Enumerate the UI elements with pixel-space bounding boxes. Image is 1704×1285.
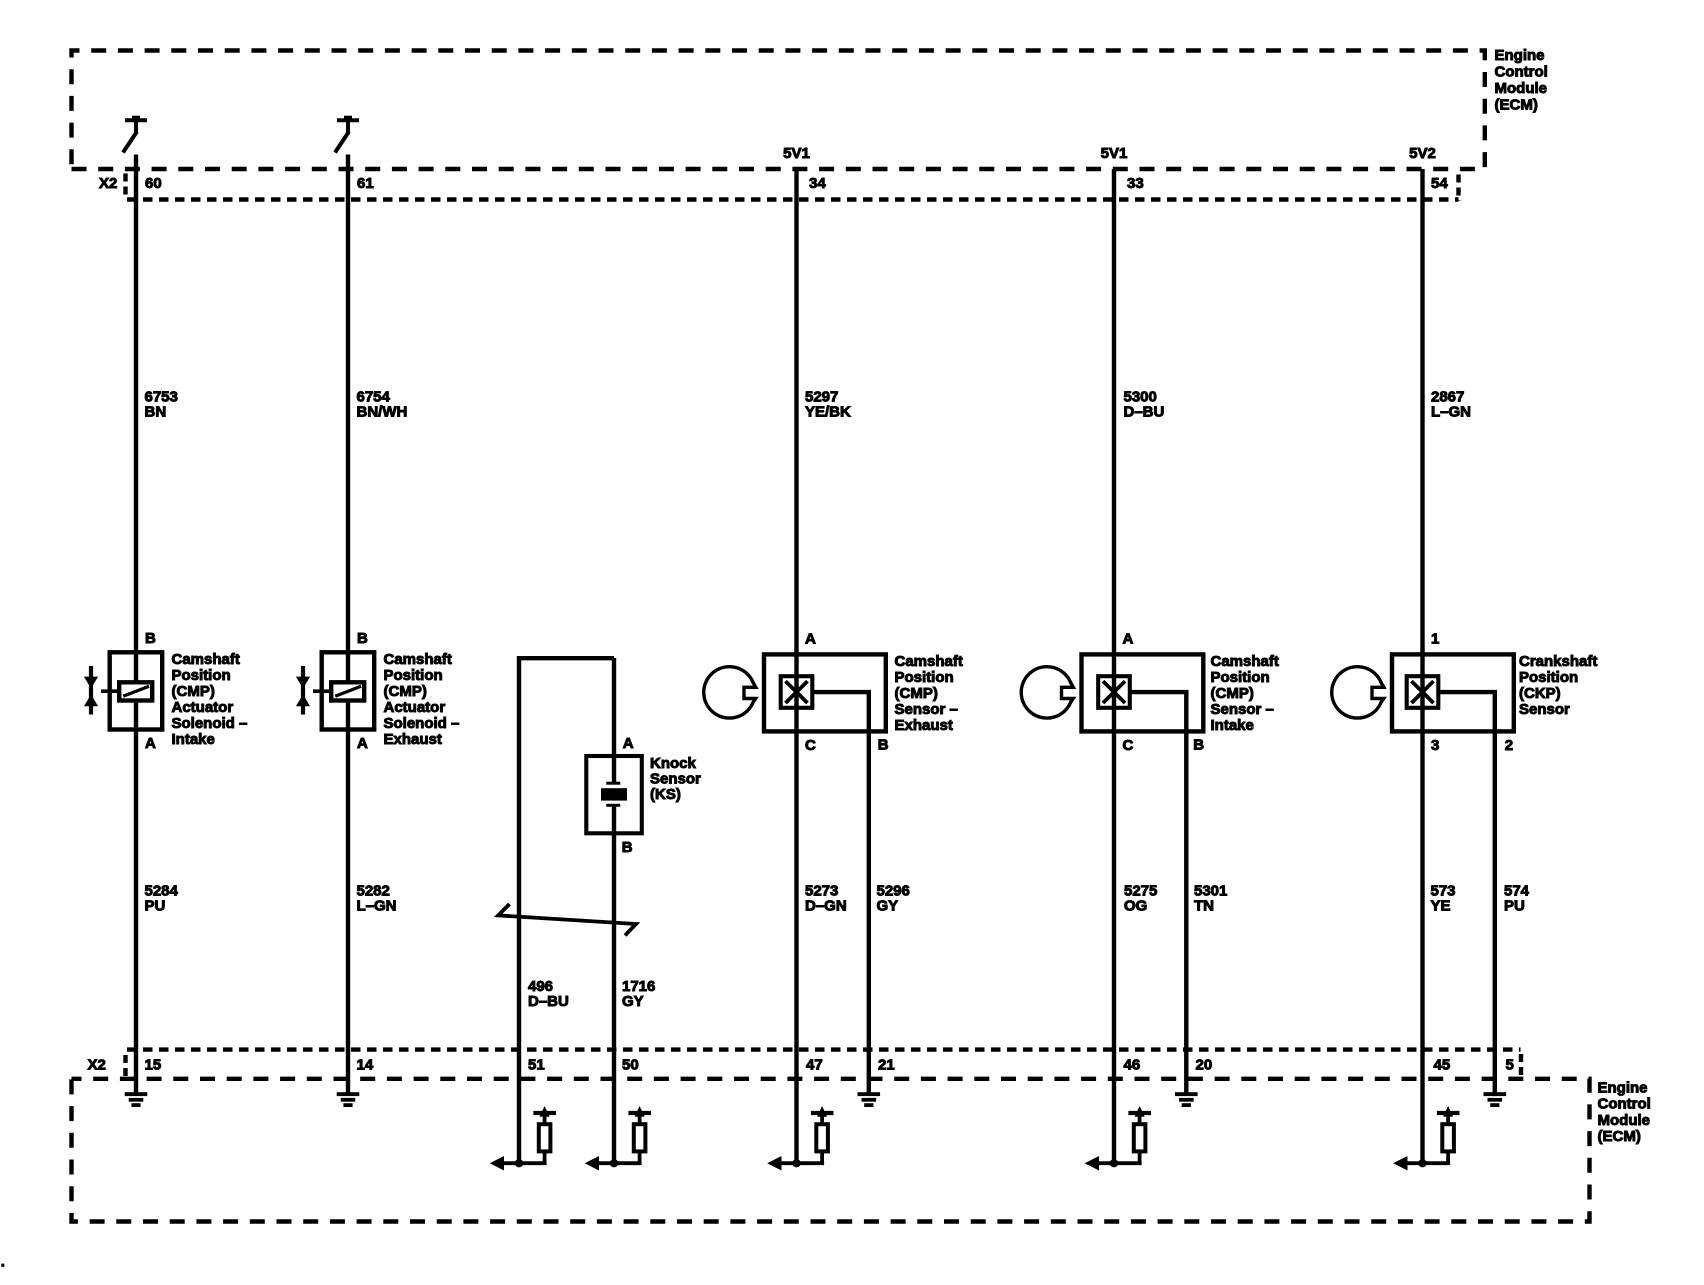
svg-text:3: 3 [1431, 737, 1439, 754]
svg-text:A: A [805, 630, 816, 647]
svg-text:5V1: 5V1 [783, 145, 810, 162]
svg-text:Module: Module [1495, 80, 1548, 97]
svg-text:X2: X2 [88, 1056, 106, 1073]
svg-text:D–BU: D–BU [528, 993, 569, 1010]
svg-text:(CMP): (CMP) [1211, 685, 1254, 702]
svg-text:YE: YE [1431, 898, 1451, 915]
svg-text:A: A [1123, 630, 1134, 647]
svg-text:54: 54 [1431, 175, 1448, 192]
svg-text:50: 50 [622, 1056, 639, 1073]
svg-text:Position: Position [1211, 669, 1270, 686]
svg-text:Actuator: Actuator [384, 699, 446, 716]
svg-text:X2: X2 [99, 175, 117, 192]
svg-text:45: 45 [1434, 1056, 1451, 1073]
svg-text:47: 47 [806, 1056, 823, 1073]
svg-text:46: 46 [1124, 1056, 1141, 1073]
svg-text:34: 34 [809, 175, 826, 192]
svg-text:B: B [357, 630, 368, 647]
svg-text:Module: Module [1598, 1112, 1651, 1129]
svg-text:1: 1 [1431, 630, 1439, 647]
svg-text:5V2: 5V2 [1409, 145, 1436, 162]
svg-text:YE/BK: YE/BK [805, 404, 851, 421]
svg-text:Position: Position [895, 669, 954, 686]
svg-text:60: 60 [145, 175, 162, 192]
svg-text:Intake: Intake [1211, 717, 1254, 734]
svg-text:(CMP): (CMP) [384, 683, 427, 700]
svg-text:5V1: 5V1 [1101, 145, 1128, 162]
svg-text:20: 20 [1196, 1056, 1213, 1073]
svg-text:(CKP): (CKP) [1519, 685, 1561, 702]
svg-text:Exhaust: Exhaust [384, 731, 442, 748]
svg-text:5: 5 [1506, 1056, 1514, 1073]
svg-text:Camshaft: Camshaft [384, 651, 452, 668]
svg-text:Crankshaft: Crankshaft [1519, 653, 1597, 670]
svg-text:GY: GY [622, 993, 644, 1010]
svg-text:Position: Position [384, 667, 443, 684]
svg-text:PU: PU [145, 898, 166, 915]
svg-text:14: 14 [357, 1056, 374, 1073]
svg-text:(CMP): (CMP) [895, 685, 938, 702]
svg-text:(KS): (KS) [650, 786, 681, 803]
svg-text:21: 21 [878, 1056, 895, 1073]
svg-text:Sensor: Sensor [650, 770, 701, 787]
svg-text:15: 15 [145, 1056, 162, 1073]
svg-text:D–BU: D–BU [1124, 404, 1165, 421]
svg-text:Control: Control [1495, 63, 1548, 80]
svg-text:Engine: Engine [1495, 47, 1545, 64]
svg-text:Solenoid –: Solenoid – [172, 715, 248, 732]
svg-text:Position: Position [172, 667, 231, 684]
svg-text:B: B [622, 839, 633, 856]
svg-text:Intake: Intake [172, 731, 215, 748]
svg-text:A: A [623, 735, 634, 752]
svg-text:2: 2 [1505, 737, 1513, 754]
svg-text:D–GN: D–GN [805, 898, 847, 915]
svg-text:B: B [145, 630, 156, 647]
svg-text:Control: Control [1598, 1096, 1651, 1113]
svg-text:61: 61 [357, 175, 374, 192]
svg-text:L–GN: L–GN [357, 898, 397, 915]
svg-text:TN: TN [1194, 898, 1214, 915]
svg-text:GY: GY [877, 898, 899, 915]
svg-text:C: C [805, 737, 816, 754]
svg-text:BN: BN [145, 404, 167, 421]
svg-text:Solenoid –: Solenoid – [384, 715, 460, 732]
svg-text:Position: Position [1519, 669, 1578, 686]
svg-text:33: 33 [1127, 175, 1144, 192]
svg-text:BN/WH: BN/WH [357, 404, 408, 421]
svg-text:(ECM): (ECM) [1495, 97, 1538, 114]
svg-text:Engine: Engine [1598, 1079, 1648, 1096]
svg-text:Sensor –: Sensor – [1211, 701, 1274, 718]
svg-text:51: 51 [528, 1056, 545, 1073]
svg-text:OG: OG [1124, 898, 1147, 915]
svg-text:Knock: Knock [650, 755, 697, 772]
svg-text:(ECM): (ECM) [1598, 1128, 1641, 1145]
svg-text:Actuator: Actuator [172, 699, 234, 716]
svg-text:Sensor: Sensor [1519, 701, 1570, 718]
svg-text:(CMP): (CMP) [172, 683, 215, 700]
svg-text:Camshaft: Camshaft [172, 651, 240, 668]
svg-text:L–GN: L–GN [1431, 404, 1471, 421]
svg-text:PU: PU [1504, 898, 1525, 915]
svg-text:A: A [357, 735, 368, 752]
svg-text:Camshaft: Camshaft [895, 653, 963, 670]
svg-text:Camshaft: Camshaft [1211, 653, 1279, 670]
svg-text:B: B [1193, 736, 1204, 753]
svg-text:A: A [145, 735, 156, 752]
svg-text:B: B [878, 736, 889, 753]
svg-text:Exhaust: Exhaust [895, 717, 953, 734]
svg-text:Sensor –: Sensor – [895, 701, 958, 718]
svg-text:C: C [1123, 737, 1134, 754]
